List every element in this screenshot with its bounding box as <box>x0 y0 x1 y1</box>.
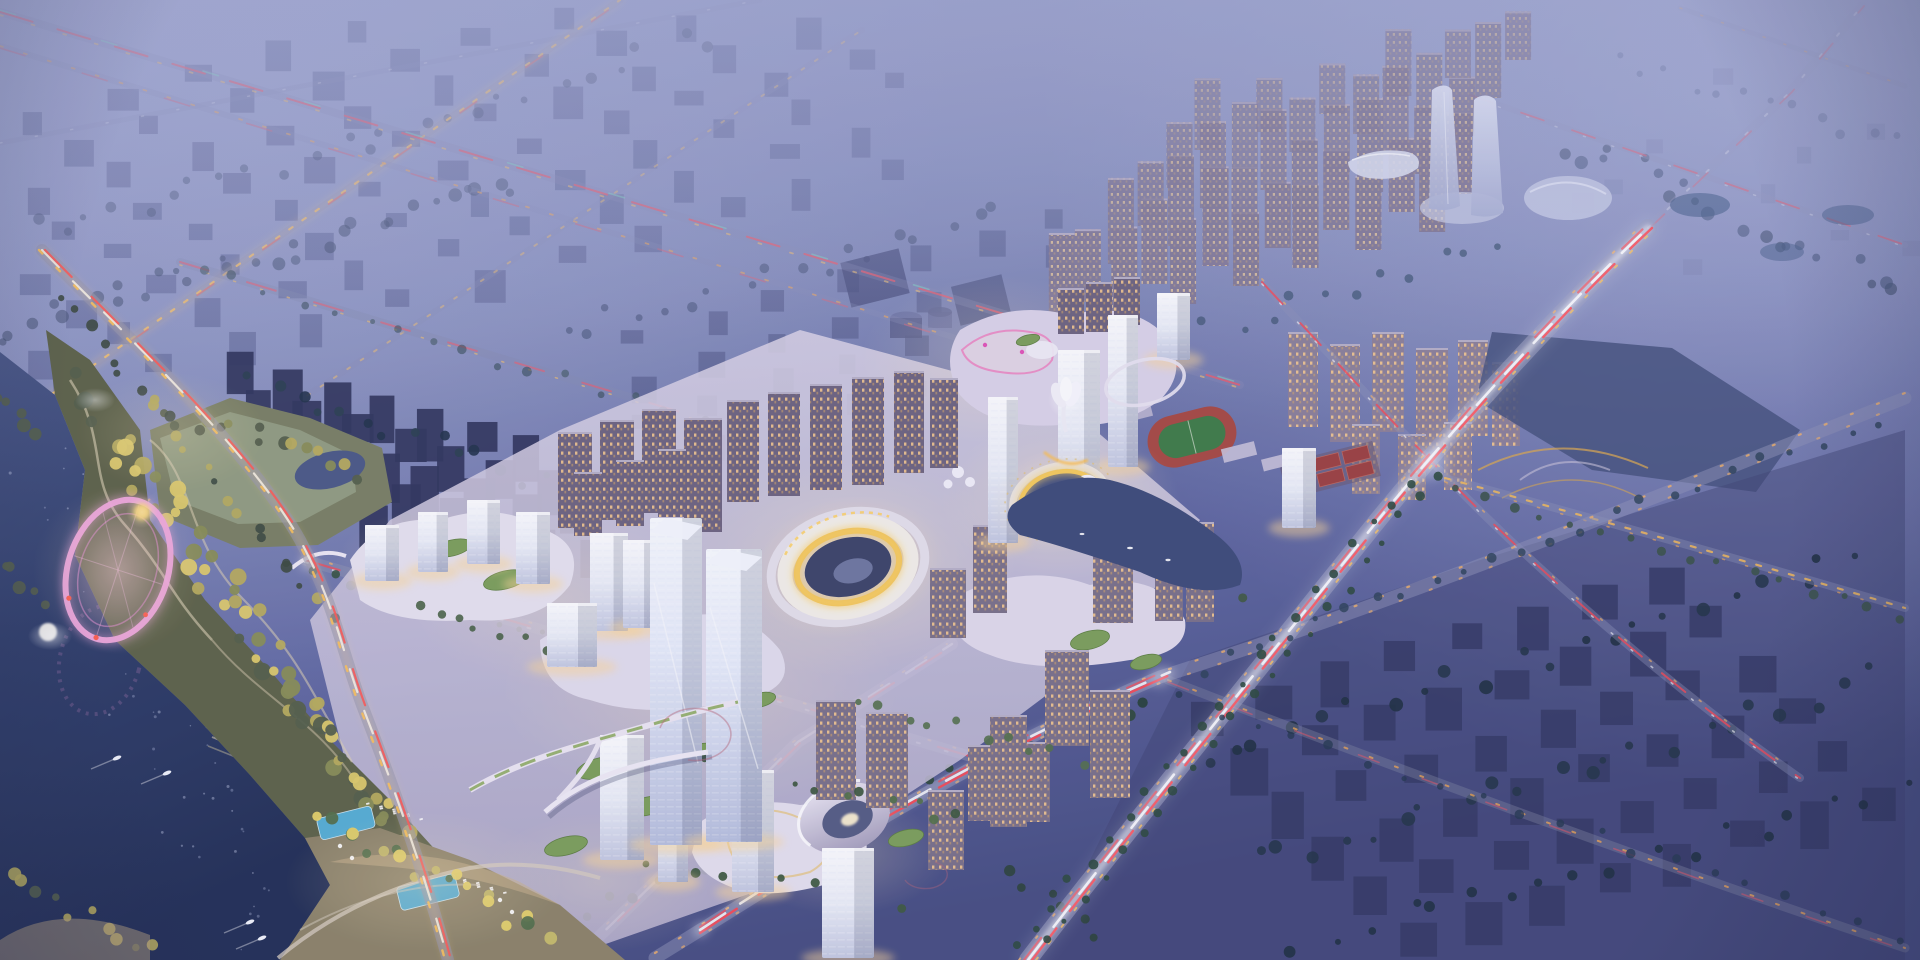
rendering-canvas <box>0 0 1920 960</box>
blue-cast-tint <box>0 0 1920 960</box>
city-aerial-rendering <box>0 0 1920 960</box>
